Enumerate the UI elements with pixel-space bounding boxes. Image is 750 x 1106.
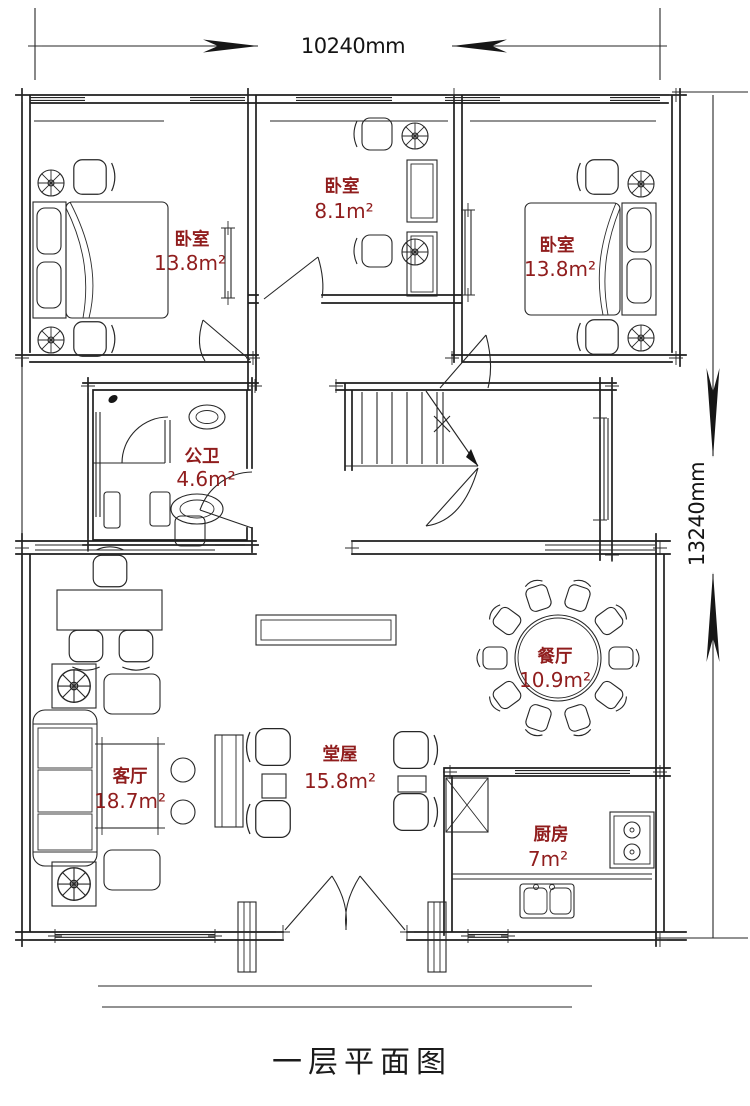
room-labels: 卧室 13.8m² 卧室 8.1m² 卧室 13.8m² 公卫 4.6m² 餐厅…	[94, 176, 596, 871]
tea-table	[57, 590, 162, 630]
bed-pillow	[37, 262, 61, 308]
bathroom-shelf	[104, 492, 120, 528]
dining-chair	[477, 647, 507, 669]
bedroom-chair	[74, 160, 115, 195]
burner	[624, 844, 640, 860]
bedroom-chair	[577, 160, 618, 195]
plant-icon	[402, 239, 428, 265]
dimension-top: 10240mm	[35, 8, 660, 80]
floor-plan-drawing: 10240mm 13240mm	[0, 0, 750, 1106]
room-area-hall: 15.8m²	[304, 769, 376, 793]
porch-column	[238, 902, 256, 972]
side-table	[262, 774, 286, 798]
room-area-bathroom: 4.6m²	[176, 467, 235, 491]
bedroom-chair	[577, 320, 618, 355]
door-understair	[426, 468, 478, 526]
armchair	[104, 674, 160, 714]
room-label-living: 客厅	[112, 766, 148, 787]
bedroom-chair	[354, 235, 392, 267]
dining-chair	[486, 602, 523, 637]
door-bathroom-inner	[93, 417, 170, 463]
room-label-bedroom-middle: 卧室	[325, 176, 360, 197]
dining-chair	[486, 679, 523, 714]
side-cabinet	[215, 735, 243, 827]
plant-icon	[38, 170, 64, 196]
dimension-right: 13240mm	[656, 92, 748, 938]
round-stool	[171, 758, 195, 782]
dining-chair	[522, 703, 552, 738]
hall-chair	[247, 801, 291, 838]
stairs	[345, 391, 478, 466]
plant-icon	[628, 325, 654, 351]
plant-icon	[58, 868, 91, 901]
bed-pillow	[627, 208, 651, 252]
hall-chair	[394, 794, 438, 831]
bed-pillow	[37, 208, 61, 254]
room-label-kitchen: 厨房	[534, 824, 569, 845]
doors	[93, 257, 491, 930]
armchair	[104, 850, 160, 890]
room-label-bedroom-left: 卧室	[175, 229, 210, 250]
dimension-height-label: 13240mm	[685, 462, 709, 566]
room-label-dining: 餐厅	[538, 646, 573, 667]
desk	[407, 160, 437, 222]
bedroom-left-furniture	[33, 160, 168, 357]
side-table	[398, 776, 426, 792]
bedroom-chair	[354, 118, 392, 150]
plant-icon	[38, 327, 64, 353]
dining-chair	[522, 578, 552, 613]
dining-chair	[609, 647, 639, 669]
bed-mattress	[66, 202, 168, 318]
plant-icon	[628, 171, 654, 197]
room-area-bedroom-right: 13.8m²	[524, 257, 596, 281]
round-stool	[171, 800, 195, 824]
dining-chair	[563, 703, 593, 738]
main-hall-furniture	[247, 615, 438, 837]
entrance-porch	[98, 902, 592, 1007]
room-label-bathroom: 公卫	[185, 447, 220, 467]
wall-lamp-icon	[107, 393, 119, 404]
toilet-tank	[150, 492, 170, 526]
plant-icon	[58, 670, 91, 703]
room-label-hall: 堂屋	[323, 744, 358, 765]
dining-chair	[563, 578, 593, 613]
room-area-bedroom-left: 13.8m²	[154, 251, 226, 275]
bedroom-chair	[74, 322, 115, 357]
room-area-living: 18.7m²	[94, 789, 166, 813]
floor-plan-page: 10240mm 13240mm	[0, 0, 750, 1106]
plant-icon	[402, 123, 428, 149]
entrance-double-door	[285, 876, 405, 930]
bathroom-sink	[189, 405, 225, 429]
hall-chair	[394, 732, 438, 769]
chair	[93, 547, 127, 587]
dimension-width-label: 10240mm	[301, 34, 405, 58]
drawing-title: 一层平面图	[272, 1045, 452, 1080]
room-area-dining: 10.9m²	[519, 668, 591, 692]
burner	[624, 822, 640, 838]
dining-chair	[593, 602, 630, 637]
room-label-bedroom-right: 卧室	[540, 235, 575, 256]
room-area-bedroom-middle: 8.1m²	[314, 199, 373, 223]
sofa	[33, 710, 97, 866]
door-bedroom-middle	[264, 257, 323, 299]
dining-chair	[593, 679, 630, 714]
room-area-kitchen: 7m²	[528, 847, 568, 871]
porch-steps	[98, 986, 592, 1007]
toilet-bowl	[171, 494, 223, 524]
chair	[119, 630, 153, 670]
hall-chair	[247, 729, 291, 766]
console-table	[256, 615, 396, 645]
living-room-furniture	[33, 547, 243, 906]
bed-pillow	[627, 259, 651, 303]
